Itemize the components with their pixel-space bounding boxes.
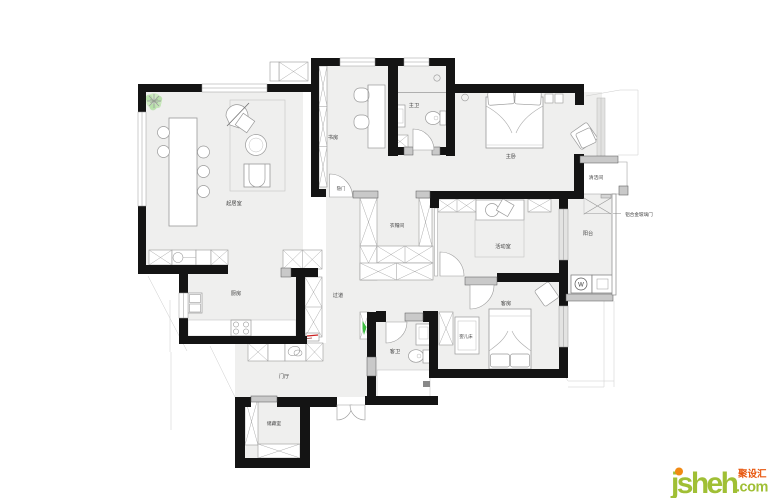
svg-text:客卫: 客卫 [390, 347, 400, 355]
svg-text:储藏室: 储藏室 [267, 420, 282, 427]
svg-text:阳台: 阳台 [583, 229, 593, 237]
svg-text:衣帽间: 衣帽间 [390, 222, 405, 229]
svg-text:过道: 过道 [333, 291, 343, 299]
svg-text:主卧: 主卧 [506, 152, 516, 160]
svg-text:厨房: 厨房 [231, 289, 241, 297]
svg-text:起居室: 起居室 [226, 199, 242, 207]
svg-text:书房: 书房 [328, 133, 338, 141]
svg-text:主卫: 主卫 [409, 101, 419, 109]
svg-text:铝合金玻璃门: 铝合金玻璃门 [625, 211, 653, 218]
svg-text:W: W [578, 282, 584, 288]
svg-text:客房: 客房 [501, 299, 511, 307]
svg-text:.com: .com [736, 480, 768, 496]
svg-text:门厅: 门厅 [279, 372, 289, 380]
svg-text:活动室: 活动室 [495, 242, 511, 250]
svg-text:隐门: 隐门 [337, 185, 346, 192]
svg-text:聚设汇: 聚设汇 [737, 468, 767, 480]
svg-text:婴儿床: 婴儿床 [459, 333, 473, 340]
svg-text:清洁间: 清洁间 [589, 174, 604, 181]
